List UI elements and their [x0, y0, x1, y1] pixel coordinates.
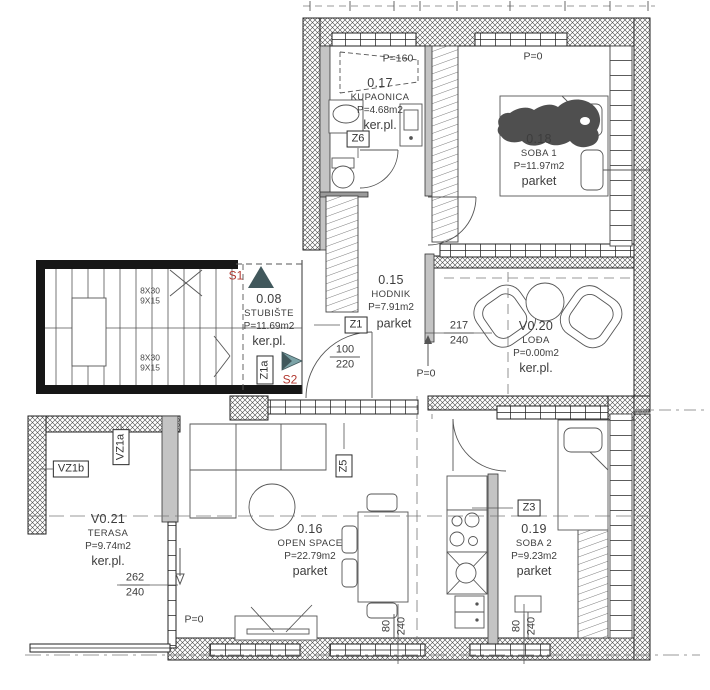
stair-marker-s2: S2	[283, 374, 298, 387]
room-id: 0.16	[297, 522, 323, 536]
round-table	[526, 283, 564, 321]
room-area: P=0.00m2	[513, 348, 559, 359]
door-tag-z1a: Z1a	[257, 356, 274, 385]
kitchen-fixtures	[447, 476, 487, 628]
stair-marker-s1: S1	[229, 270, 244, 283]
room-name: STUBIŠTE	[244, 308, 294, 319]
dim-soba2-window: 80 240	[511, 614, 538, 638]
nightstand	[515, 596, 541, 612]
room-floor: parket	[293, 564, 328, 578]
room-area: P=11.97m2	[514, 161, 565, 172]
room-label-kupaonica: 0.17 KUPAONICA P=4.68m2 ker.pl.	[351, 76, 410, 132]
stair-flight1-rise: 8X30	[140, 287, 160, 296]
dim-height: 240	[450, 334, 468, 347]
dim-open-space-window: 80 240	[381, 614, 408, 638]
dim-width: 262	[120, 572, 150, 586]
stair-flight1-run: 9X15	[140, 297, 160, 306]
parapet-hodnik: P=0	[417, 368, 436, 379]
room-name: SOBA 2	[516, 538, 552, 549]
room-name: SOBA 1	[521, 148, 557, 159]
room-id: 0.17	[367, 76, 393, 90]
room-label-terasa: V0.21 TERASA P=9.74m2 ker.pl.	[85, 512, 131, 568]
dim-height: 240	[126, 586, 144, 599]
room-area: P=7.91m2	[368, 302, 414, 313]
dim-height: 240	[395, 617, 408, 635]
room-area: P=9.74m2	[85, 541, 131, 552]
door-tag-z3: Z3	[518, 500, 541, 517]
door-tag-z6: Z6	[347, 131, 370, 148]
room-floor-hodnik: parket	[377, 317, 412, 330]
parapet-soba1: P=0	[524, 51, 543, 62]
dim-width: 217	[444, 320, 474, 334]
stair-flight2-rise: 8X30	[140, 354, 160, 363]
pillow	[581, 150, 603, 190]
room-floor: parket	[522, 174, 557, 188]
room-floor: parket	[517, 564, 552, 578]
pillow	[564, 428, 602, 452]
dim-width: 100	[330, 344, 360, 358]
floor-plan: P=160 0.17 KUPAONICA P=4.68m2 ker.pl. Z6…	[0, 0, 710, 690]
room-label-lodja: V0.20 LOĐA P=0.00m2 ker.pl.	[513, 319, 559, 375]
toilet-bowl	[332, 166, 354, 188]
room-id: 0.18	[526, 132, 552, 146]
room-name: LOĐA	[522, 335, 549, 346]
room-label-stubiste: 0.08 STUBIŠTE P=11.69m2 ker.pl.	[244, 292, 295, 348]
door-tag-z1: Z1	[345, 317, 368, 334]
dim-height: 240	[525, 617, 538, 635]
stair-direction-arrow-s1	[248, 266, 274, 288]
room-area: P=9.23m2	[511, 551, 557, 562]
room-floor: ker.pl.	[519, 361, 552, 375]
room-name: OPEN SPACE	[277, 538, 342, 549]
room-label-open-space: 0.16 OPEN SPACE P=22.79m2 parket	[277, 522, 342, 578]
stair-flight2-run: 9X15	[140, 364, 160, 373]
room-id: 0.15	[378, 273, 404, 287]
dim-lodja-opening: 217 240	[444, 320, 474, 347]
door-tag-z5: Z5	[336, 455, 353, 478]
armchair	[554, 279, 629, 354]
door-tag-vz1b: VZ1b	[53, 461, 89, 478]
dim-terasa-opening: 262 240	[120, 572, 150, 599]
chair	[342, 559, 357, 587]
dim-width: 80	[381, 614, 395, 638]
dim-hodnik-door: 100 220	[330, 344, 360, 371]
room-name: TERASA	[88, 528, 128, 539]
chair	[367, 494, 397, 511]
room-id: V0.20	[519, 319, 553, 333]
room-label-hodnik: 0.15 HODNIK P=7.91m2	[368, 273, 414, 313]
room-id: V0.21	[91, 512, 125, 526]
room-area: P=11.69m2	[244, 321, 295, 332]
room-name: HODNIK	[371, 289, 410, 300]
room-name: KUPAONICA	[351, 92, 410, 103]
chair	[342, 526, 357, 553]
dim-width: 80	[511, 614, 525, 638]
door-tag-vz1a: VZ1a	[113, 429, 130, 465]
room-area: P=4.68m2	[357, 105, 403, 116]
dim-height: 220	[336, 358, 354, 371]
room-floor: ker.pl.	[252, 334, 285, 348]
kitchen-counter	[447, 476, 487, 510]
parapet-open-space: P=0	[185, 614, 204, 625]
room-area: P=22.79m2	[284, 551, 335, 562]
tv-bench	[235, 616, 317, 640]
room-label-soba1: 0.18 SOBA 1 P=11.97m2 parket	[514, 132, 565, 188]
room-label-soba2: 0.19 SOBA 2 P=9.23m2 parket	[511, 522, 557, 578]
dining-table	[358, 512, 408, 602]
room-floor: ker.pl.	[91, 554, 124, 568]
tv	[247, 629, 309, 634]
parapet-kupaonica: P=160	[383, 53, 414, 64]
room-id: 0.19	[521, 522, 547, 536]
room-id: 0.08	[256, 292, 282, 306]
